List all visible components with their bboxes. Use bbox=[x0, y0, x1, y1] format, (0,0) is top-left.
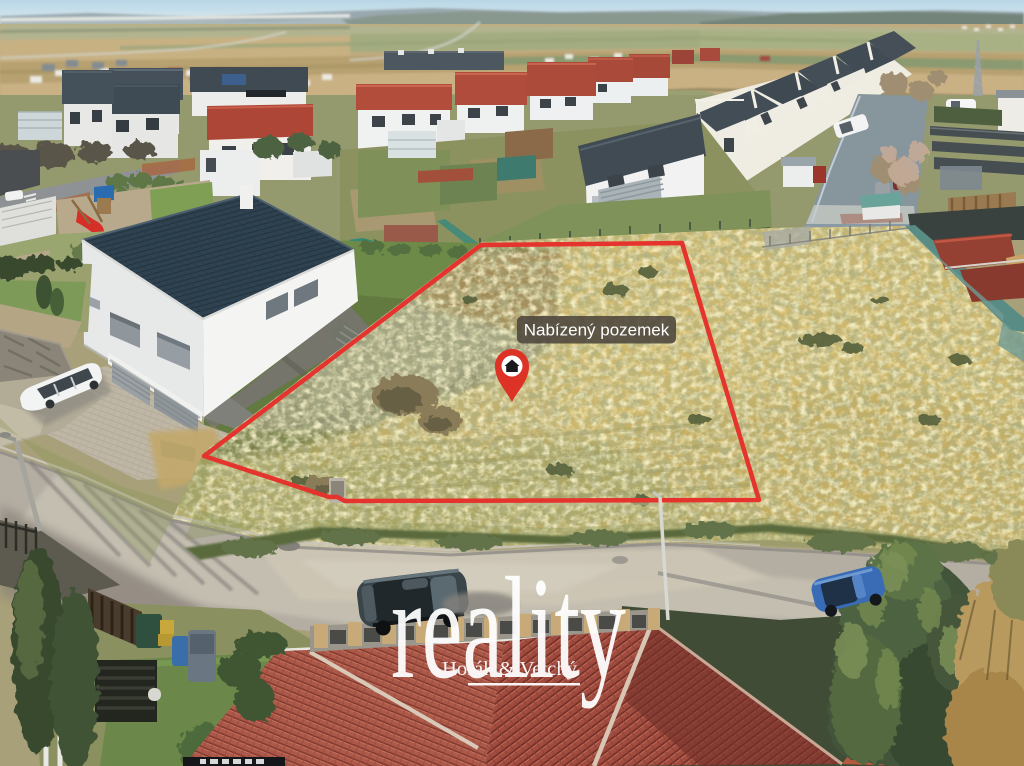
svg-text:Nabízený pozemek: Nabízený pozemek bbox=[524, 321, 670, 340]
svg-text:Horák & Vetchý: Horák & Vetchý bbox=[442, 658, 578, 680]
